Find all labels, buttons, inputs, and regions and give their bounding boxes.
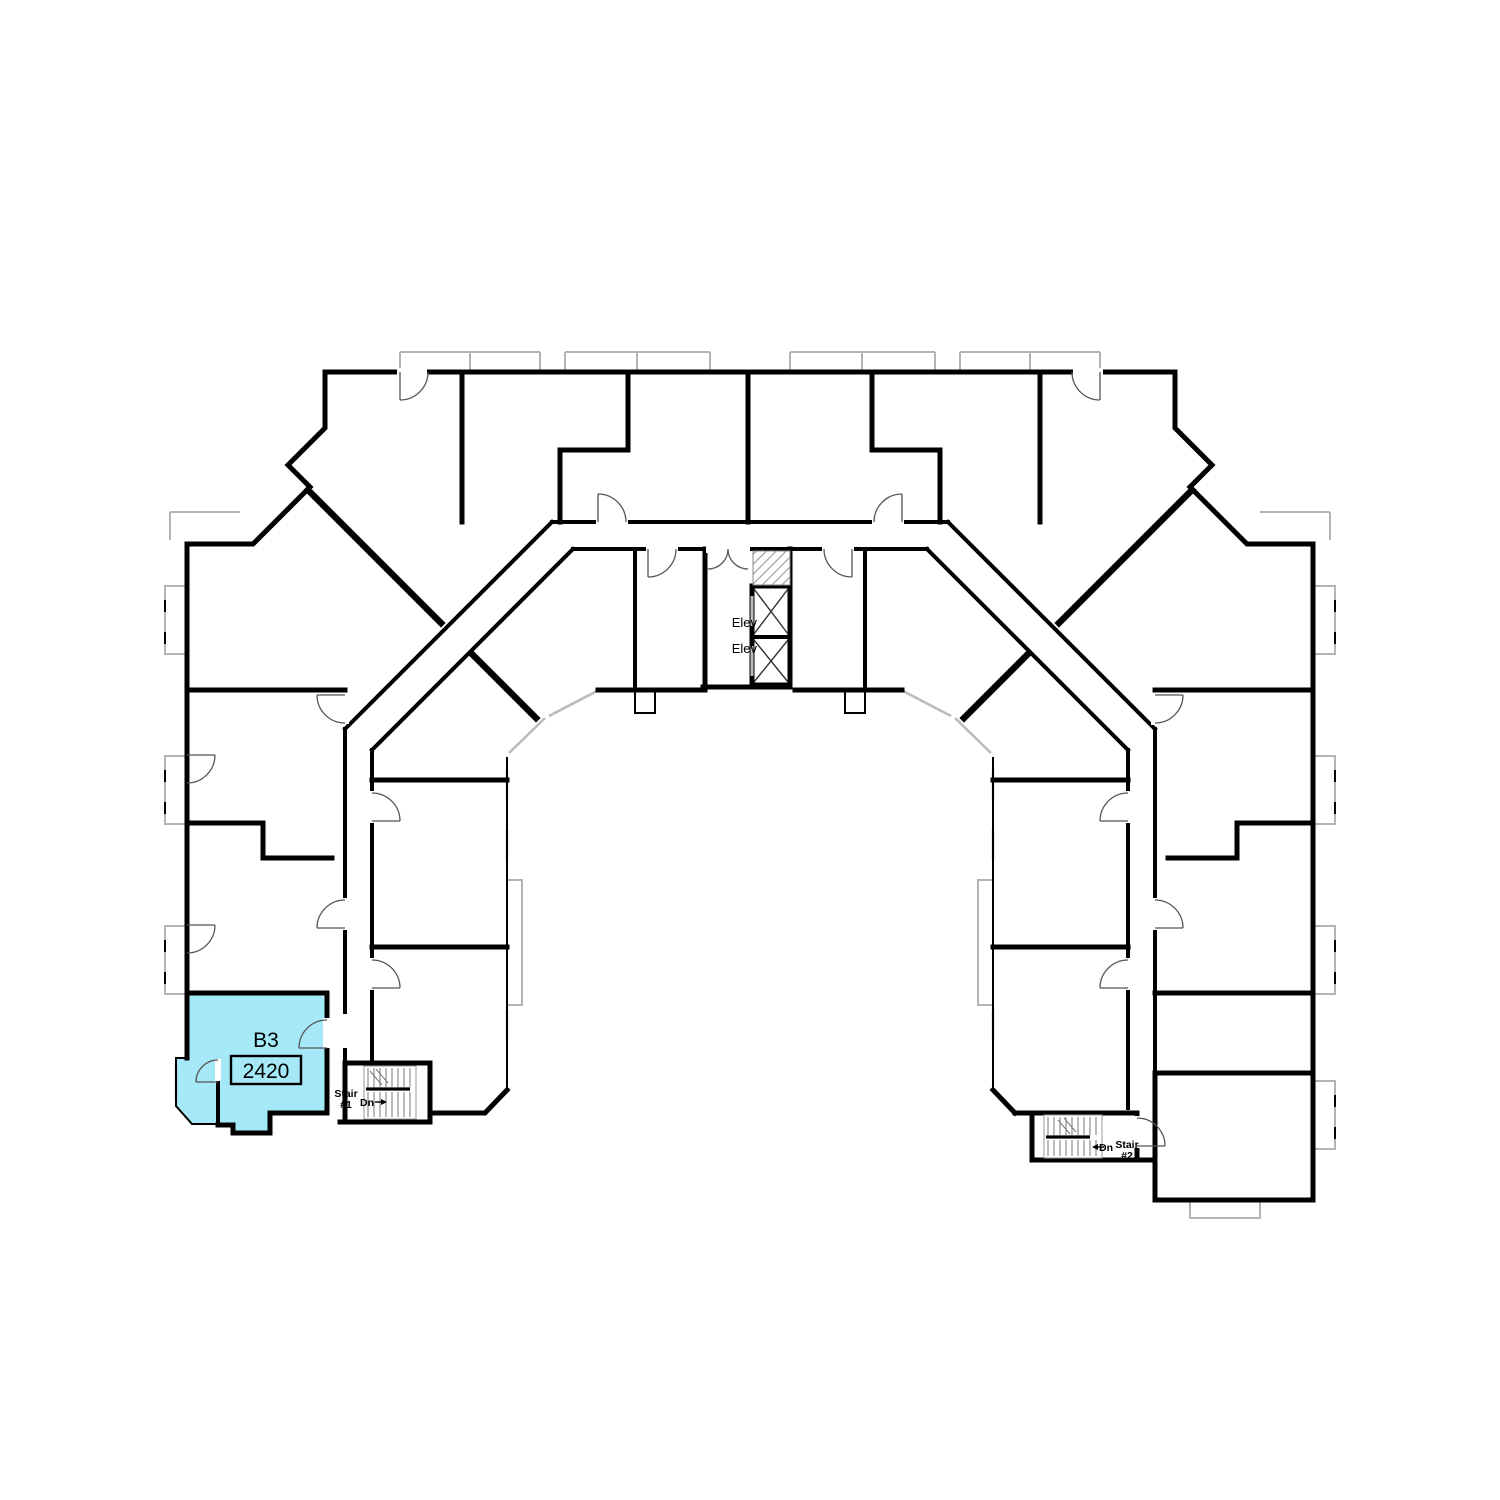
floor-plan: Elev Elev Stair #1 Dn Dn Stair #2 B3 242…: [0, 0, 1500, 1500]
elevator-core: Elev Elev: [732, 551, 790, 682]
stair1-outline: [364, 1066, 416, 1119]
stair1-down-label: Dn: [360, 1097, 374, 1109]
stair2-label-line2: #2: [1121, 1150, 1133, 1162]
door-arcs: [187, 372, 1183, 1146]
door-gaps: [215, 368, 1159, 1148]
elevator-label-2: Elev: [732, 641, 758, 656]
walls: [176, 372, 1313, 1200]
elevator-label-1: Elev: [732, 615, 758, 630]
stair1-label-line2: #1: [340, 1099, 352, 1111]
stair1-treads: [368, 1068, 410, 1117]
stair1-down-arrow-icon: [375, 1099, 387, 1105]
elevator-vestibule-hatch: [753, 551, 790, 585]
outer-and-unit-walls: [187, 372, 1313, 1200]
door-arc-set: [187, 372, 1183, 1146]
corridor-walls: [218, 522, 1155, 1162]
stair-2: Dn Stair #2: [1044, 1115, 1139, 1162]
window-wall-overlays: [176, 371, 1255, 1201]
unit-plan-code-label: B3: [253, 1029, 279, 1052]
unit-number-label: 2420: [243, 1060, 290, 1083]
floor-plan-page: Elev Elev Stair #1 Dn Dn Stair #2 B3 242…: [0, 0, 1500, 1500]
stair2-down-label: Dn: [1099, 1142, 1113, 1154]
